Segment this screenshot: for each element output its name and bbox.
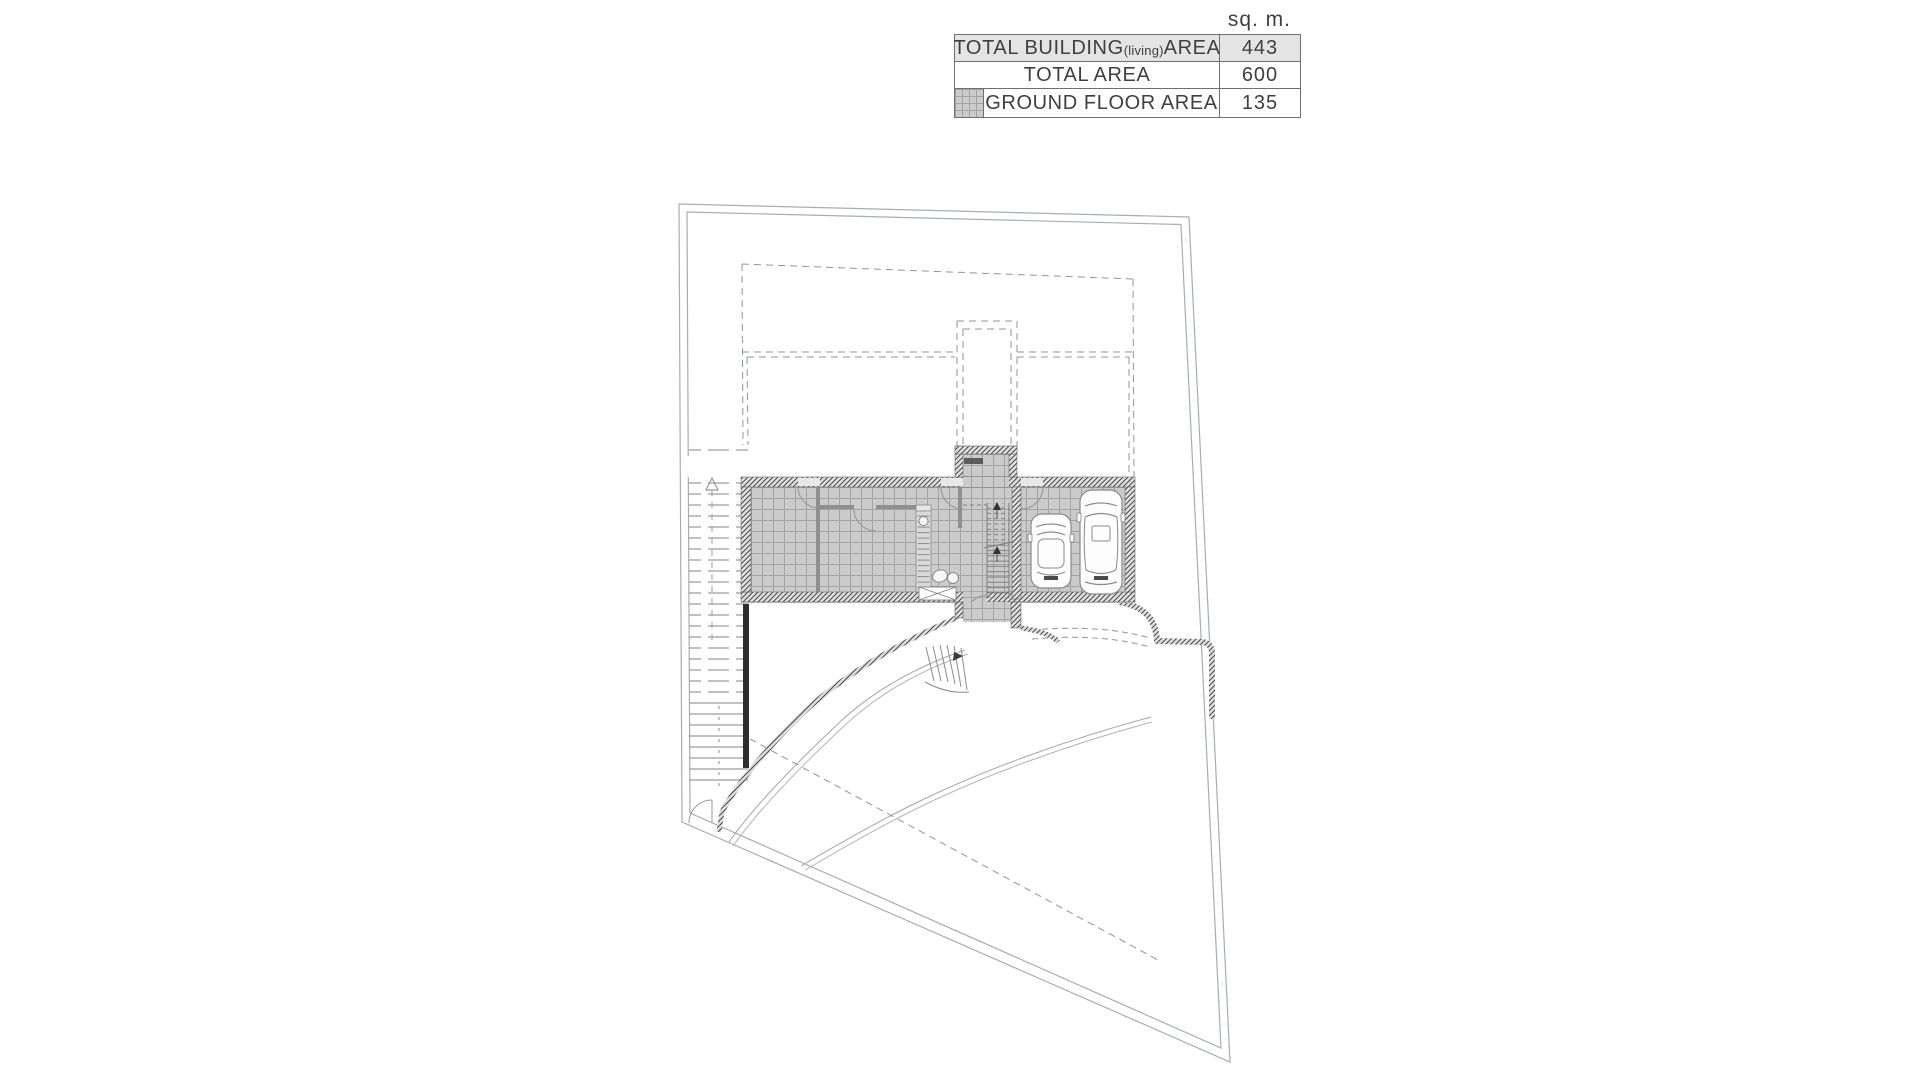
row-value: 600 — [1219, 62, 1300, 88]
row-value: 135 — [1219, 89, 1300, 117]
area-table: TOTAL BUILDING(living) AREA 443 TOTAL AR… — [954, 34, 1301, 118]
building-footprint — [741, 446, 1135, 628]
upper-floor-dashed-outline — [742, 264, 1134, 477]
room-label — [964, 458, 983, 464]
table-row-total-building: TOTAL BUILDING(living) AREA 443 — [955, 35, 1300, 61]
window-marker — [919, 587, 956, 600]
table-row-total-area: TOTAL AREA 600 — [955, 61, 1300, 88]
site-plan-drawing — [0, 0, 1920, 1080]
row-label: TOTAL BUILDING(living) AREA — [955, 35, 1219, 61]
gate-door-arc — [689, 800, 712, 823]
car-1 — [1028, 514, 1074, 588]
table-row-ground-floor: GROUND FLOOR AREA 135 — [955, 88, 1300, 117]
site-plan-page — [0, 0, 1920, 1080]
left-terrace-steps — [686, 443, 750, 788]
site-boundary — [679, 204, 1230, 1062]
stair-wall — [1012, 487, 1021, 599]
unit-label: sq. m. — [954, 6, 1301, 34]
exit-corridor — [955, 602, 1021, 628]
garden-steps — [925, 645, 969, 692]
ground-floor-hatch-swatch-icon — [955, 89, 984, 117]
right-walkway — [1021, 602, 1212, 719]
kitchen-counter — [916, 505, 931, 592]
row-label: TOTAL AREA — [955, 62, 1219, 88]
area-table-block: sq. m. TOTAL BUILDING(living) AREA 443 T… — [954, 6, 1301, 118]
car-2 — [1077, 490, 1125, 594]
retaining-dark-wall — [743, 604, 749, 768]
row-label: GROUND FLOOR AREA — [955, 89, 1219, 117]
row-value: 443 — [1219, 35, 1300, 61]
